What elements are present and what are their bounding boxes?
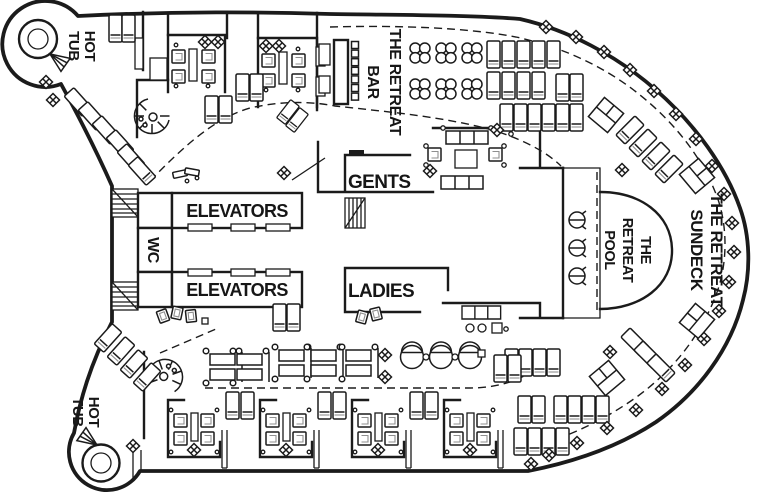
wc-label: WC bbox=[144, 237, 161, 264]
sun-lounger-icon bbox=[109, 15, 122, 42]
elevators-top-label: ELEVATORS bbox=[186, 201, 288, 221]
hot-tub-bottom-label: HOTTUB bbox=[69, 397, 102, 428]
hot-tub-top-label: HOTTUB bbox=[65, 31, 98, 62]
ladies-label: LADIES bbox=[348, 281, 414, 302]
stairs-icon bbox=[112, 189, 138, 217]
cabana-top-2 bbox=[260, 40, 306, 92]
stairs-icon bbox=[345, 198, 365, 228]
sofa-icon bbox=[446, 131, 488, 144]
bar-stool-icon bbox=[352, 42, 359, 49]
elevators-bottom-label: ELEVATORS bbox=[186, 280, 288, 300]
stairs-icon bbox=[112, 282, 138, 310]
gents-label: GENTS bbox=[348, 172, 410, 193]
retreat-sundeck-label: THE RETREATSUNDECK bbox=[687, 193, 726, 307]
round-daybed-icon bbox=[401, 342, 424, 369]
deck-plan: HOTTUB THE RETREATBAR GENTS LADIES ELEVA… bbox=[0, 0, 771, 502]
